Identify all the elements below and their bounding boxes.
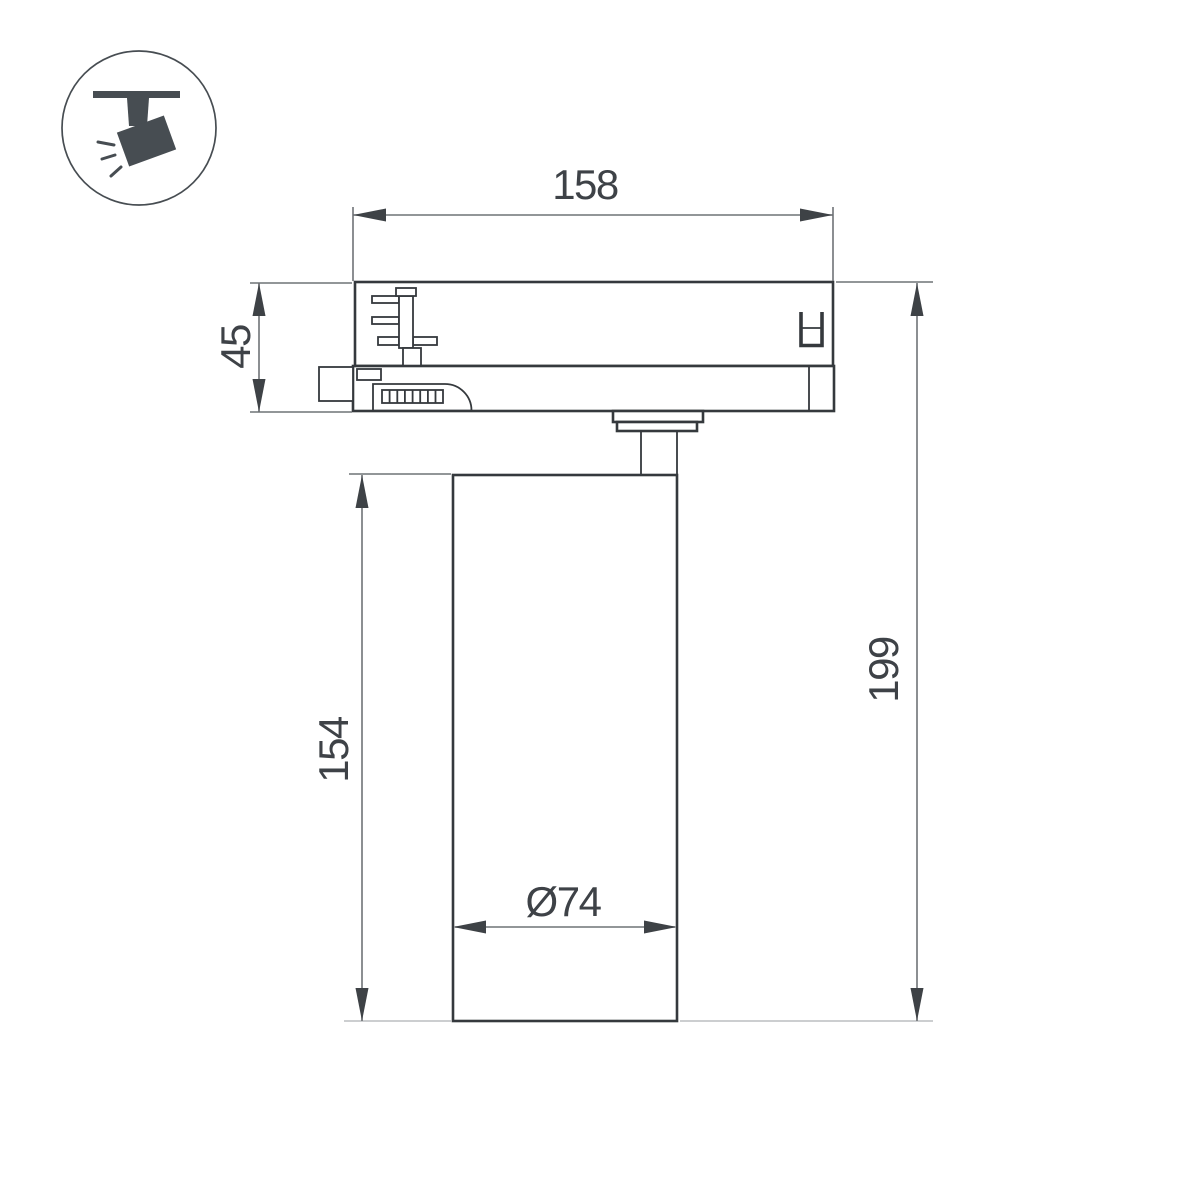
dim-45-label: 45 xyxy=(212,325,259,369)
dim-199-arrow-up xyxy=(911,283,924,316)
contact-post-foot xyxy=(403,348,421,366)
dim-45-arrow-down xyxy=(253,379,266,412)
dim-199-label: 199 xyxy=(860,637,907,703)
contact-prong-top xyxy=(372,296,399,303)
dim-154-arrow-down xyxy=(356,988,369,1021)
dim-154-arrow-up xyxy=(356,475,369,508)
dimension-track-width: 158 xyxy=(353,161,833,281)
drawing-canvas: 158 45 199 154 xyxy=(0,0,1200,1200)
track-light-icon xyxy=(62,51,216,205)
dim-158-label: 158 xyxy=(552,161,618,208)
icon-ceiling-track-bar xyxy=(93,91,180,98)
dim-45-arrow-up xyxy=(253,283,266,316)
contact-post xyxy=(399,296,413,348)
dim-158-arrow-left xyxy=(353,209,386,222)
lamp-cylinder xyxy=(453,475,677,1021)
dim-158-extension-lines xyxy=(353,207,833,281)
icon-mount-stem xyxy=(127,98,149,126)
ribs-lines xyxy=(390,390,436,403)
lock-latch xyxy=(319,367,353,401)
dimension-body-height: 154 xyxy=(310,474,451,1021)
dim-74-label: Ø74 xyxy=(526,878,602,925)
mount-step-lower xyxy=(617,422,697,431)
dim-154-label: 154 xyxy=(310,716,357,783)
mount-step-upper xyxy=(613,411,703,422)
technical-drawing: 158 45 199 154 xyxy=(0,0,1200,1200)
icon-light-rays xyxy=(98,142,121,176)
adjustment-ribs xyxy=(382,390,443,403)
contact-prong-bottom xyxy=(378,337,399,345)
icon-lamp-head xyxy=(117,116,176,167)
dim-199-arrow-down xyxy=(911,988,924,1021)
lock-latch-notch xyxy=(357,369,381,380)
dim-158-arrow-right xyxy=(800,209,833,222)
contact-post-cap xyxy=(396,288,416,296)
track-connector-body xyxy=(355,282,833,366)
contact-prong-middle xyxy=(372,317,399,324)
stem xyxy=(641,431,677,475)
contact-prong-right xyxy=(413,337,437,345)
